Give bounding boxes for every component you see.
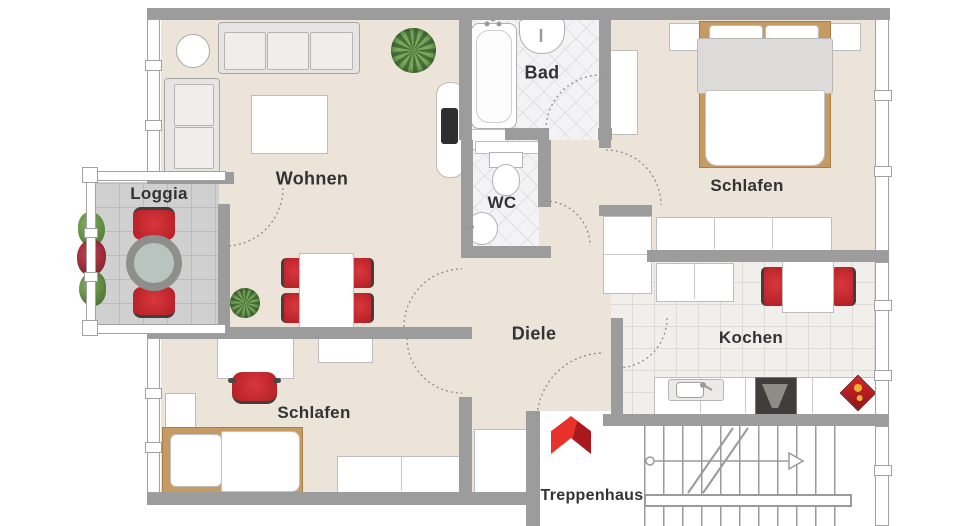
bed-duvet: [705, 90, 825, 166]
plant-icon: [230, 288, 260, 318]
counter-divider: [745, 378, 746, 413]
side-table-round: [176, 34, 210, 68]
window: [875, 426, 889, 526]
wardrobe-divider: [714, 218, 715, 249]
railing-post: [84, 228, 98, 238]
wardrobe: [609, 50, 638, 135]
stair-treads: [644, 426, 852, 526]
window-post: [145, 120, 162, 131]
room-label-schlafen-bottom: Schlafen: [277, 403, 350, 423]
window-post: [874, 90, 892, 101]
loggia-railing: [86, 176, 96, 332]
toilet-bowl: [492, 164, 520, 196]
window-post: [874, 465, 892, 476]
nightstand: [829, 23, 861, 51]
kitchen-counter-upper: [656, 263, 734, 302]
room-label-wohnen: Wohnen: [276, 169, 348, 190]
railing-post: [82, 320, 98, 336]
wall: [647, 250, 889, 262]
loggia-chair: [133, 287, 175, 318]
wall: [459, 19, 472, 140]
counter-divider: [812, 378, 813, 413]
entry-wardrobe: [474, 429, 529, 494]
window-post: [874, 370, 892, 381]
wall: [611, 318, 623, 426]
coffee-table: [251, 95, 328, 154]
nightstand: [165, 393, 196, 430]
room-label-schlafen-top: Schlafen: [710, 176, 783, 196]
hall-wardrobe: [603, 216, 652, 294]
window-post: [145, 60, 162, 71]
floor-plan: Loggia Wohnen Bad WC Schlafen Diele Koch…: [0, 0, 960, 526]
stair-landing: [644, 494, 852, 507]
wall: [538, 140, 551, 207]
window-post: [874, 166, 892, 177]
room-label-loggia: Loggia: [130, 184, 188, 204]
loggia-table: [126, 235, 182, 291]
counter-divider: [694, 264, 695, 299]
window: [147, 338, 160, 493]
wall: [599, 205, 652, 216]
railing-post: [82, 167, 98, 183]
sofa-cushion: [310, 32, 353, 70]
wall: [526, 411, 540, 526]
wall: [147, 8, 890, 20]
tv-screen: [441, 108, 458, 144]
wall: [459, 397, 472, 492]
window: [875, 19, 889, 251]
wardrobe-row: [656, 217, 832, 252]
room-label-wc: WC: [488, 193, 517, 213]
kitchen-sink-bowl: [676, 382, 704, 398]
window: [147, 19, 160, 173]
window-post: [874, 300, 892, 311]
railing-post: [84, 272, 98, 282]
bed-pillow: [170, 434, 222, 487]
wall: [218, 204, 230, 332]
desk-chair-arm: [228, 378, 236, 383]
wall: [875, 250, 889, 262]
window-post: [145, 388, 162, 399]
sofa-cushion: [174, 84, 214, 126]
sofa-cushion: [174, 127, 214, 169]
window: [875, 262, 889, 415]
wardrobe-divider: [604, 254, 649, 255]
plant-icon: [391, 28, 436, 73]
sofa-cushion: [224, 32, 266, 70]
wardrobe-divider: [772, 218, 773, 249]
wall: [147, 492, 540, 505]
wall: [461, 140, 473, 248]
room-label-kochen: Kochen: [719, 328, 783, 348]
room-label-bad: Bad: [525, 63, 560, 84]
window-post: [145, 442, 162, 453]
loggia-railing: [86, 324, 226, 334]
desk-chair: [232, 372, 277, 404]
bathtub-basin: [476, 30, 512, 123]
dining-table: [299, 253, 354, 330]
kitchen-table: [782, 261, 834, 313]
wall: [603, 414, 889, 426]
room-label-treppenhaus: Treppenhaus: [541, 487, 644, 505]
room-label-diele: Diele: [512, 324, 557, 345]
loggia-railing: [86, 171, 226, 181]
bed-blanket: [697, 38, 833, 94]
desk-chair-arm: [273, 378, 281, 383]
sideboard: [318, 338, 373, 363]
dresser-divider: [401, 457, 402, 491]
wall: [505, 128, 549, 140]
wall: [461, 246, 551, 258]
kitchen-chair: [831, 267, 856, 306]
wall: [599, 19, 611, 148]
bed-duvet: [221, 431, 300, 492]
sofa-cushion: [267, 32, 309, 70]
